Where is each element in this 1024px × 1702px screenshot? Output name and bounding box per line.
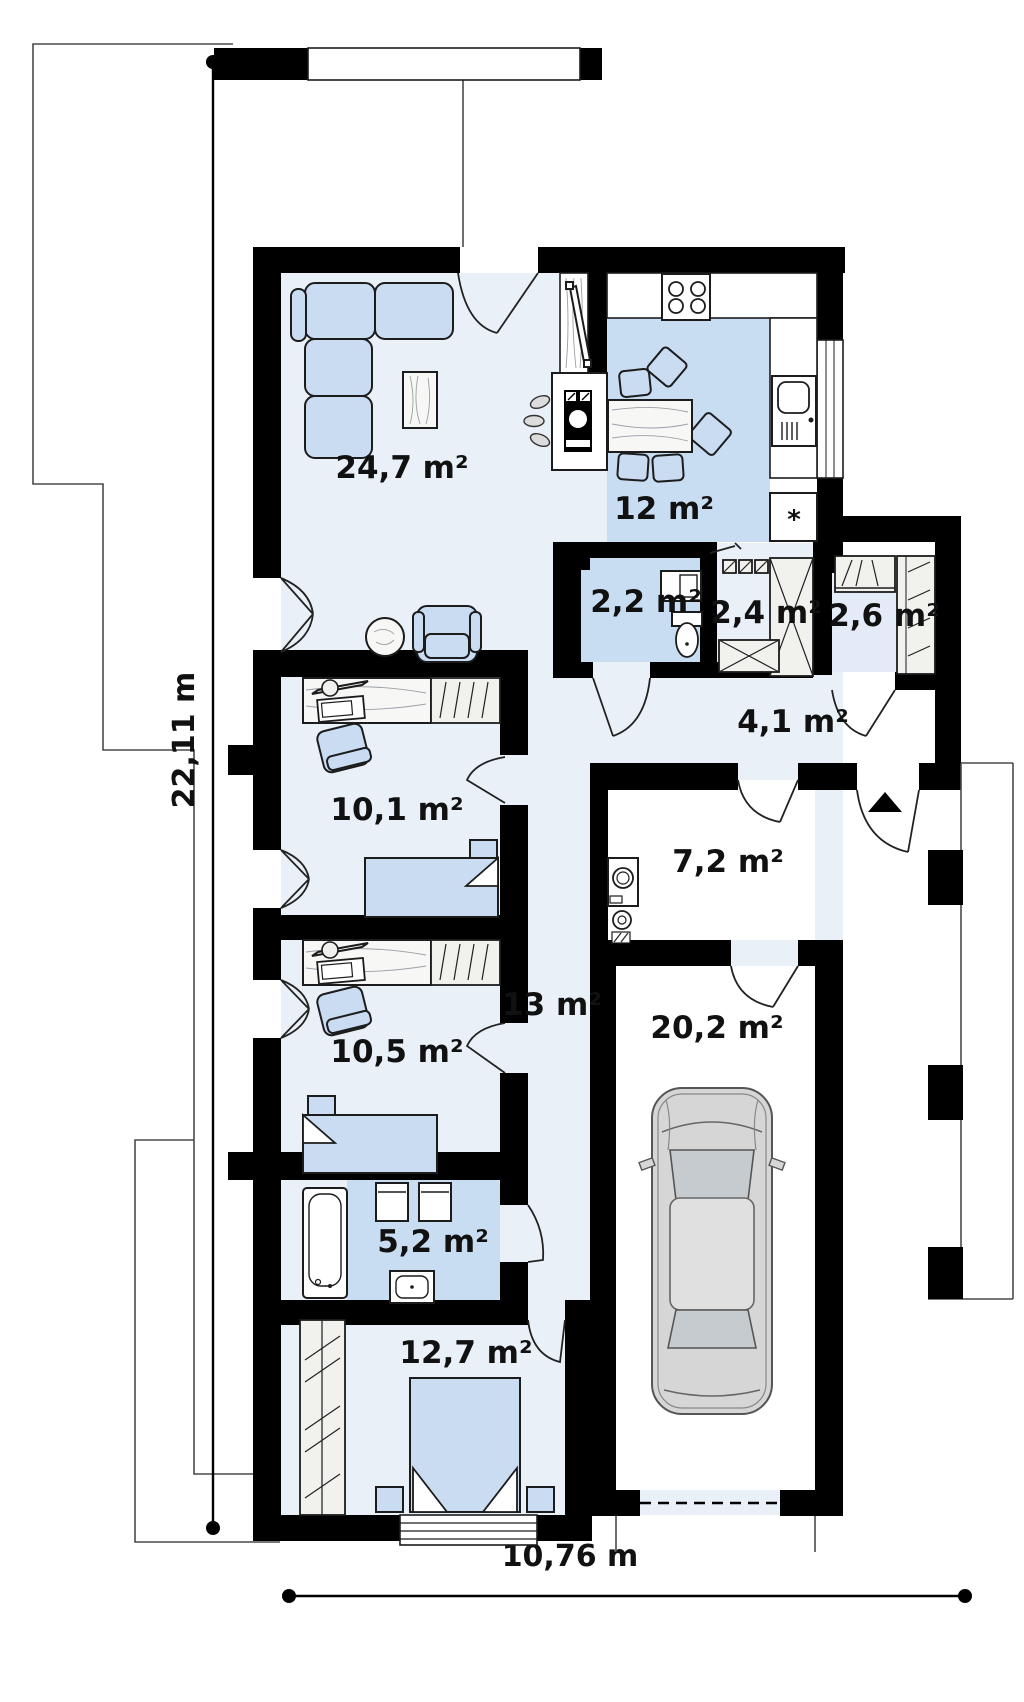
kitchen-counter-top bbox=[607, 273, 817, 318]
boiler bbox=[613, 911, 631, 929]
toilet bbox=[376, 1183, 408, 1221]
room-area-label-bedroom-3: 12,7 m² bbox=[399, 1335, 532, 1371]
hob bbox=[662, 274, 710, 320]
bedroom2-desk bbox=[303, 940, 431, 985]
storage-shelf-boxes bbox=[723, 560, 768, 573]
nightstand-right bbox=[527, 1487, 554, 1512]
floor-plan-canvas: 22,11 m 10,76 m bbox=[0, 0, 1024, 1702]
coffee-table bbox=[403, 372, 437, 428]
room-area-label-utility: 7,2 m² bbox=[672, 844, 784, 880]
bidet bbox=[419, 1183, 451, 1221]
porch-pillar-3 bbox=[928, 1247, 963, 1299]
room-area-label-wc: 2,2 m² bbox=[590, 584, 702, 620]
bedroom1-desk bbox=[303, 678, 431, 723]
entrance-arrow-icon bbox=[868, 792, 902, 812]
floor-drain bbox=[612, 932, 630, 943]
fridge-symbol: * bbox=[787, 505, 801, 535]
fridge: * bbox=[770, 493, 817, 541]
room-area-label-bathroom: 5,2 m² bbox=[377, 1224, 489, 1260]
porch-pillar-1 bbox=[928, 850, 963, 905]
room-area-label-kitchen: 12 m² bbox=[614, 491, 714, 527]
entrance-porch bbox=[868, 763, 1013, 1299]
room-area-label-storage: 2,4 m² bbox=[710, 595, 822, 631]
room-area-label-corridor: 13 m² bbox=[502, 987, 602, 1023]
kitchen-window bbox=[817, 340, 843, 478]
room-area-label-wardrobe: 2,6 m² bbox=[828, 598, 940, 634]
room-area-label-bedroom-1: 10,1 m² bbox=[330, 792, 463, 828]
bedroom1-wardrobe bbox=[431, 678, 500, 723]
room-area-label-hall: 4,1 m² bbox=[737, 704, 849, 740]
car-top-view bbox=[639, 1088, 785, 1414]
room-area-label-bedroom-2: 10,5 m² bbox=[330, 1034, 463, 1070]
floor-plan-drawing: 22,11 m 10,76 m bbox=[0, 0, 1024, 1702]
terrace-steps bbox=[400, 1515, 537, 1545]
room-area-label-garage: 20,2 m² bbox=[650, 1010, 783, 1046]
bathroom-sink bbox=[390, 1271, 434, 1303]
porch-pillar-2 bbox=[928, 1065, 963, 1120]
armchair bbox=[413, 606, 481, 662]
kitchen-sink bbox=[772, 376, 816, 446]
vertical-dimension-label: 22,11 m bbox=[167, 672, 202, 809]
terrace-window bbox=[308, 48, 580, 80]
nightstand-left bbox=[376, 1487, 403, 1512]
room-area-label-living-room: 24,7 m² bbox=[335, 450, 468, 486]
round-side-table bbox=[366, 618, 404, 656]
bedroom2-wardrobe bbox=[431, 940, 500, 985]
bedroom3-wardrobe bbox=[300, 1320, 345, 1515]
bathtub bbox=[303, 1188, 347, 1298]
